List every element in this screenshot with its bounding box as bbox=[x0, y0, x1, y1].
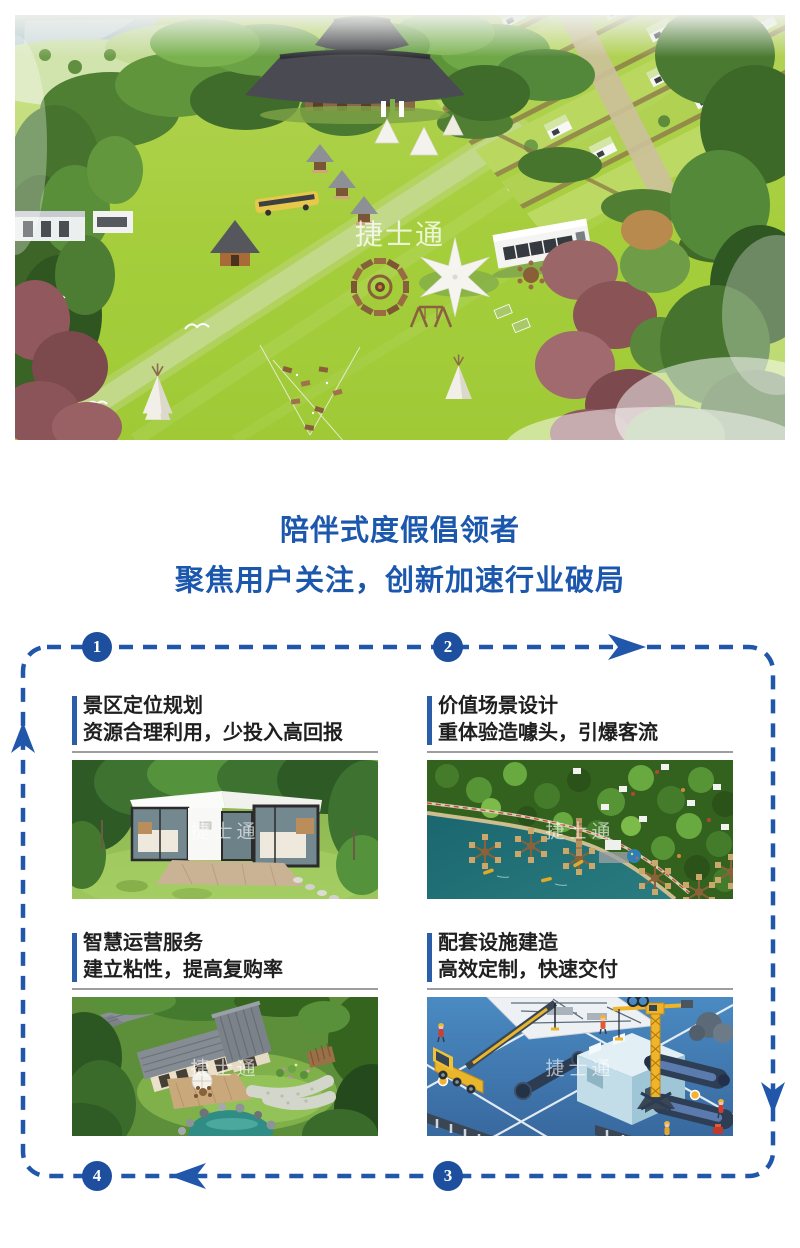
flow-arrow-up-icon bbox=[11, 722, 35, 753]
card-facility-construction: 配套设施建造 高效定制，快速交付 bbox=[427, 930, 733, 1136]
step-badge-3: 3 bbox=[433, 1161, 463, 1191]
card-value-scene-design: 价值场景设计 重体验造噱头，引爆客流 bbox=[427, 693, 733, 899]
card-subtitle: 资源合理利用，少投入高回报 bbox=[83, 720, 378, 747]
card-image-modern-cabin: 捷士通 bbox=[72, 760, 378, 899]
step-badge-2: 2 bbox=[433, 632, 463, 662]
flow-arrow-left-icon bbox=[170, 1163, 206, 1189]
intro-title-line2: 聚焦用户关注，创新加速行业破局 bbox=[0, 562, 800, 600]
heading-rule bbox=[427, 988, 733, 990]
card-title: 智慧运营服务 bbox=[83, 930, 378, 957]
promo-page: 捷士通 陪伴式度假倡领者 聚焦用户关注，创新加速行业破局 1 2 3 4 景区定… bbox=[0, 0, 800, 1248]
card-image-lake-aerial: 捷士通 bbox=[427, 760, 733, 899]
step-badge-4: 4 bbox=[82, 1161, 112, 1191]
flow-arrow-right-icon bbox=[608, 634, 646, 660]
deck bbox=[156, 860, 304, 886]
flow-arrow-down-icon bbox=[761, 1082, 785, 1114]
heading-accent-bar bbox=[72, 933, 77, 982]
heading-accent-bar bbox=[427, 696, 432, 745]
heading-rule bbox=[72, 751, 378, 753]
hero-illustration bbox=[15, 15, 785, 440]
heading-rule bbox=[427, 751, 733, 753]
intro-title-line1: 陪伴式度假倡领者 bbox=[0, 512, 800, 550]
card-title: 景区定位规划 bbox=[83, 693, 378, 720]
card-subtitle: 重体验造噱头，引爆客流 bbox=[438, 720, 733, 747]
heading-accent-bar bbox=[427, 933, 432, 982]
step-badge-1: 1 bbox=[82, 632, 112, 662]
card-smart-operations: 智慧运营服务 建立粘性，提高复购率 bbox=[72, 930, 378, 1136]
card-subtitle: 建立粘性，提高复购率 bbox=[83, 957, 378, 984]
card-scenic-positioning: 景区定位规划 资源合理利用，少投入高回报 bbox=[72, 693, 378, 899]
card-image-construction-isometric: 捷士通 bbox=[427, 997, 733, 1136]
card-image-garden-cottage: 捷士通 bbox=[72, 997, 378, 1136]
lakeside-pavilion bbox=[605, 840, 621, 850]
card-title: 价值场景设计 bbox=[438, 693, 733, 720]
intro-titles: 陪伴式度假倡领者 聚焦用户关注，创新加速行业破局 bbox=[0, 512, 800, 600]
card-subtitle: 高效定制，快速交付 bbox=[438, 957, 733, 984]
heading-rule bbox=[72, 988, 378, 990]
hero-aerial-rendering: 捷士通 bbox=[15, 15, 785, 440]
card-title: 配套设施建造 bbox=[438, 930, 733, 957]
heading-accent-bar bbox=[72, 696, 77, 745]
modern-cabin bbox=[130, 791, 322, 866]
